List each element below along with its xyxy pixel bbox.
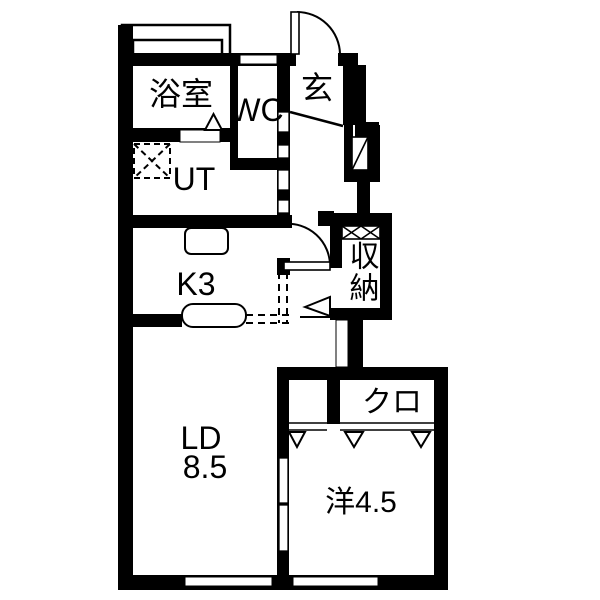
storage-hatch [342, 226, 380, 239]
wc-window [240, 55, 277, 64]
room-label-wc: WC [230, 92, 283, 128]
room-label-storage: 収納 [345, 240, 380, 304]
wall-kitchen-stub [118, 314, 182, 327]
room-label-closet: クロ [362, 386, 422, 419]
wall-below-ps [357, 182, 370, 215]
room-label-kitchen: K3 [176, 266, 215, 302]
kitchen-sink [185, 228, 228, 254]
ld-window [185, 577, 272, 586]
wall-closet-left [327, 380, 340, 424]
ld-west-sliding-door [279, 458, 288, 551]
wall-west-top [277, 367, 448, 380]
kitchen-counter [182, 304, 246, 327]
room-label-utility: UT [173, 161, 216, 197]
wall-right [434, 367, 448, 590]
west-room-window [293, 577, 378, 586]
wall-bottom [118, 575, 448, 590]
room-size-ld: 8.5 [183, 449, 227, 485]
wall-entrance-jog [355, 65, 366, 125]
wall-left [118, 25, 133, 590]
room-label-western: 洋4.5 [325, 486, 397, 519]
floor-plan-drawing: 浴室 WC 玄 UT K3 LD 8.5 収納 クロ 洋4.5 [0, 0, 600, 600]
storage-door-opening [330, 268, 342, 308]
void-below-storage [336, 320, 348, 367]
wall-storage-stub [318, 211, 334, 226]
room-label-entrance: 玄 [301, 70, 333, 106]
room-label-bathroom: 浴室 [149, 76, 213, 112]
pipe-space [352, 137, 368, 170]
wall-ut-bottom [118, 215, 292, 228]
wall-below-storage [348, 320, 363, 367]
bath-door-opening [180, 130, 220, 142]
floor-plan: 浴室 WC 玄 UT K3 LD 8.5 収納 クロ 洋4.5 [0, 0, 600, 600]
